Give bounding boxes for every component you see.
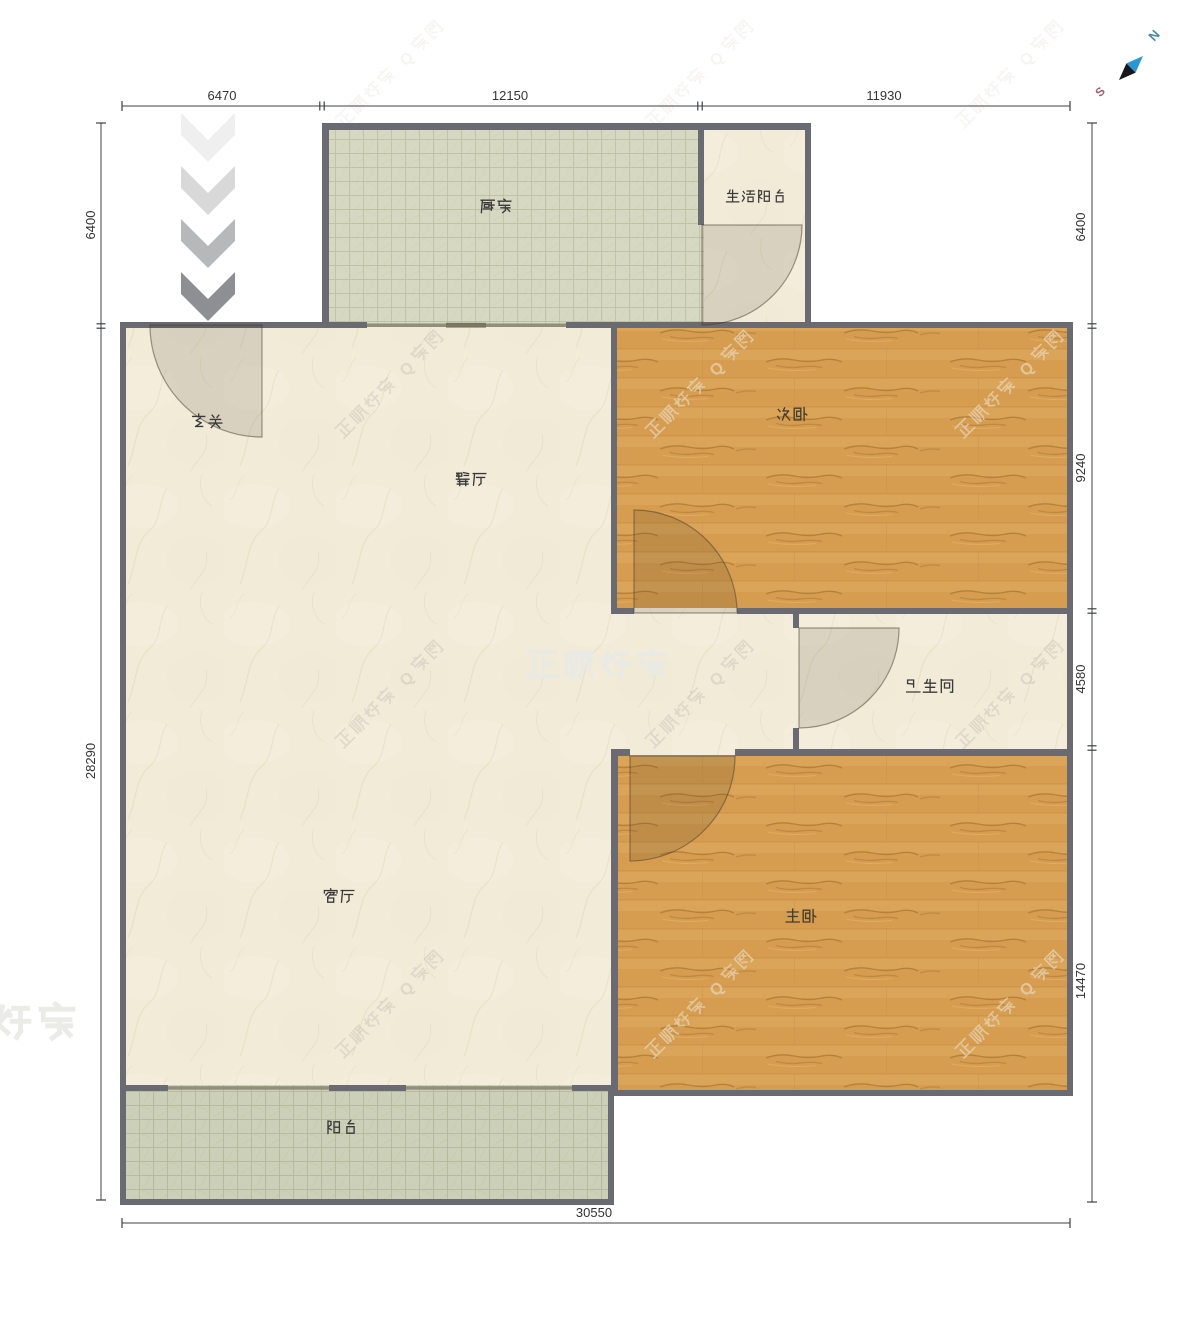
svg-text:6400: 6400 (83, 211, 98, 240)
svg-text:14470: 14470 (1073, 963, 1088, 999)
svg-text:6470: 6470 (208, 88, 237, 103)
svg-text:30550: 30550 (576, 1205, 612, 1220)
svg-text:28290: 28290 (83, 743, 98, 779)
svg-text:6400: 6400 (1073, 213, 1088, 242)
svg-text:12150: 12150 (492, 88, 528, 103)
svg-text:9240: 9240 (1073, 454, 1088, 483)
svg-text:11930: 11930 (866, 88, 901, 103)
svg-text:4580: 4580 (1073, 665, 1088, 694)
